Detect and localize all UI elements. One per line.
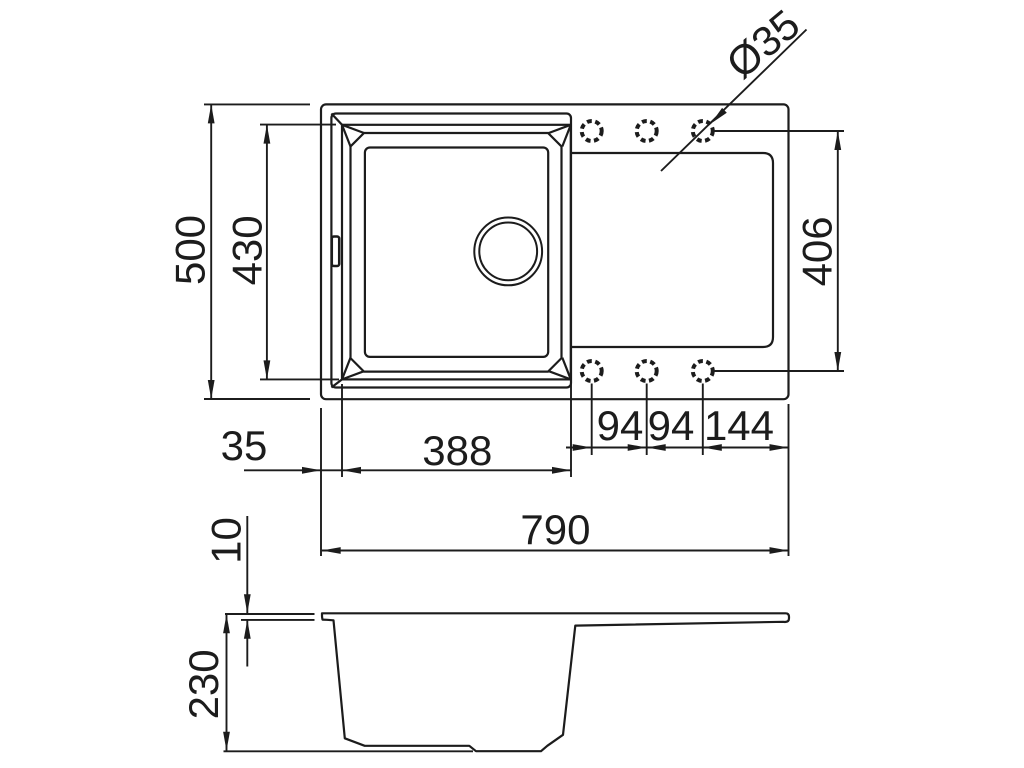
svg-text:94: 94: [648, 402, 695, 449]
svg-text:10: 10: [203, 517, 250, 564]
svg-text:388: 388: [422, 427, 492, 474]
svg-text:430: 430: [224, 215, 271, 285]
svg-text:35: 35: [221, 422, 268, 469]
svg-text:790: 790: [520, 506, 590, 553]
svg-text:94: 94: [597, 402, 644, 449]
svg-text:230: 230: [180, 649, 227, 719]
svg-text:500: 500: [166, 215, 213, 285]
svg-text:144: 144: [704, 402, 774, 449]
svg-text:406: 406: [794, 216, 841, 286]
